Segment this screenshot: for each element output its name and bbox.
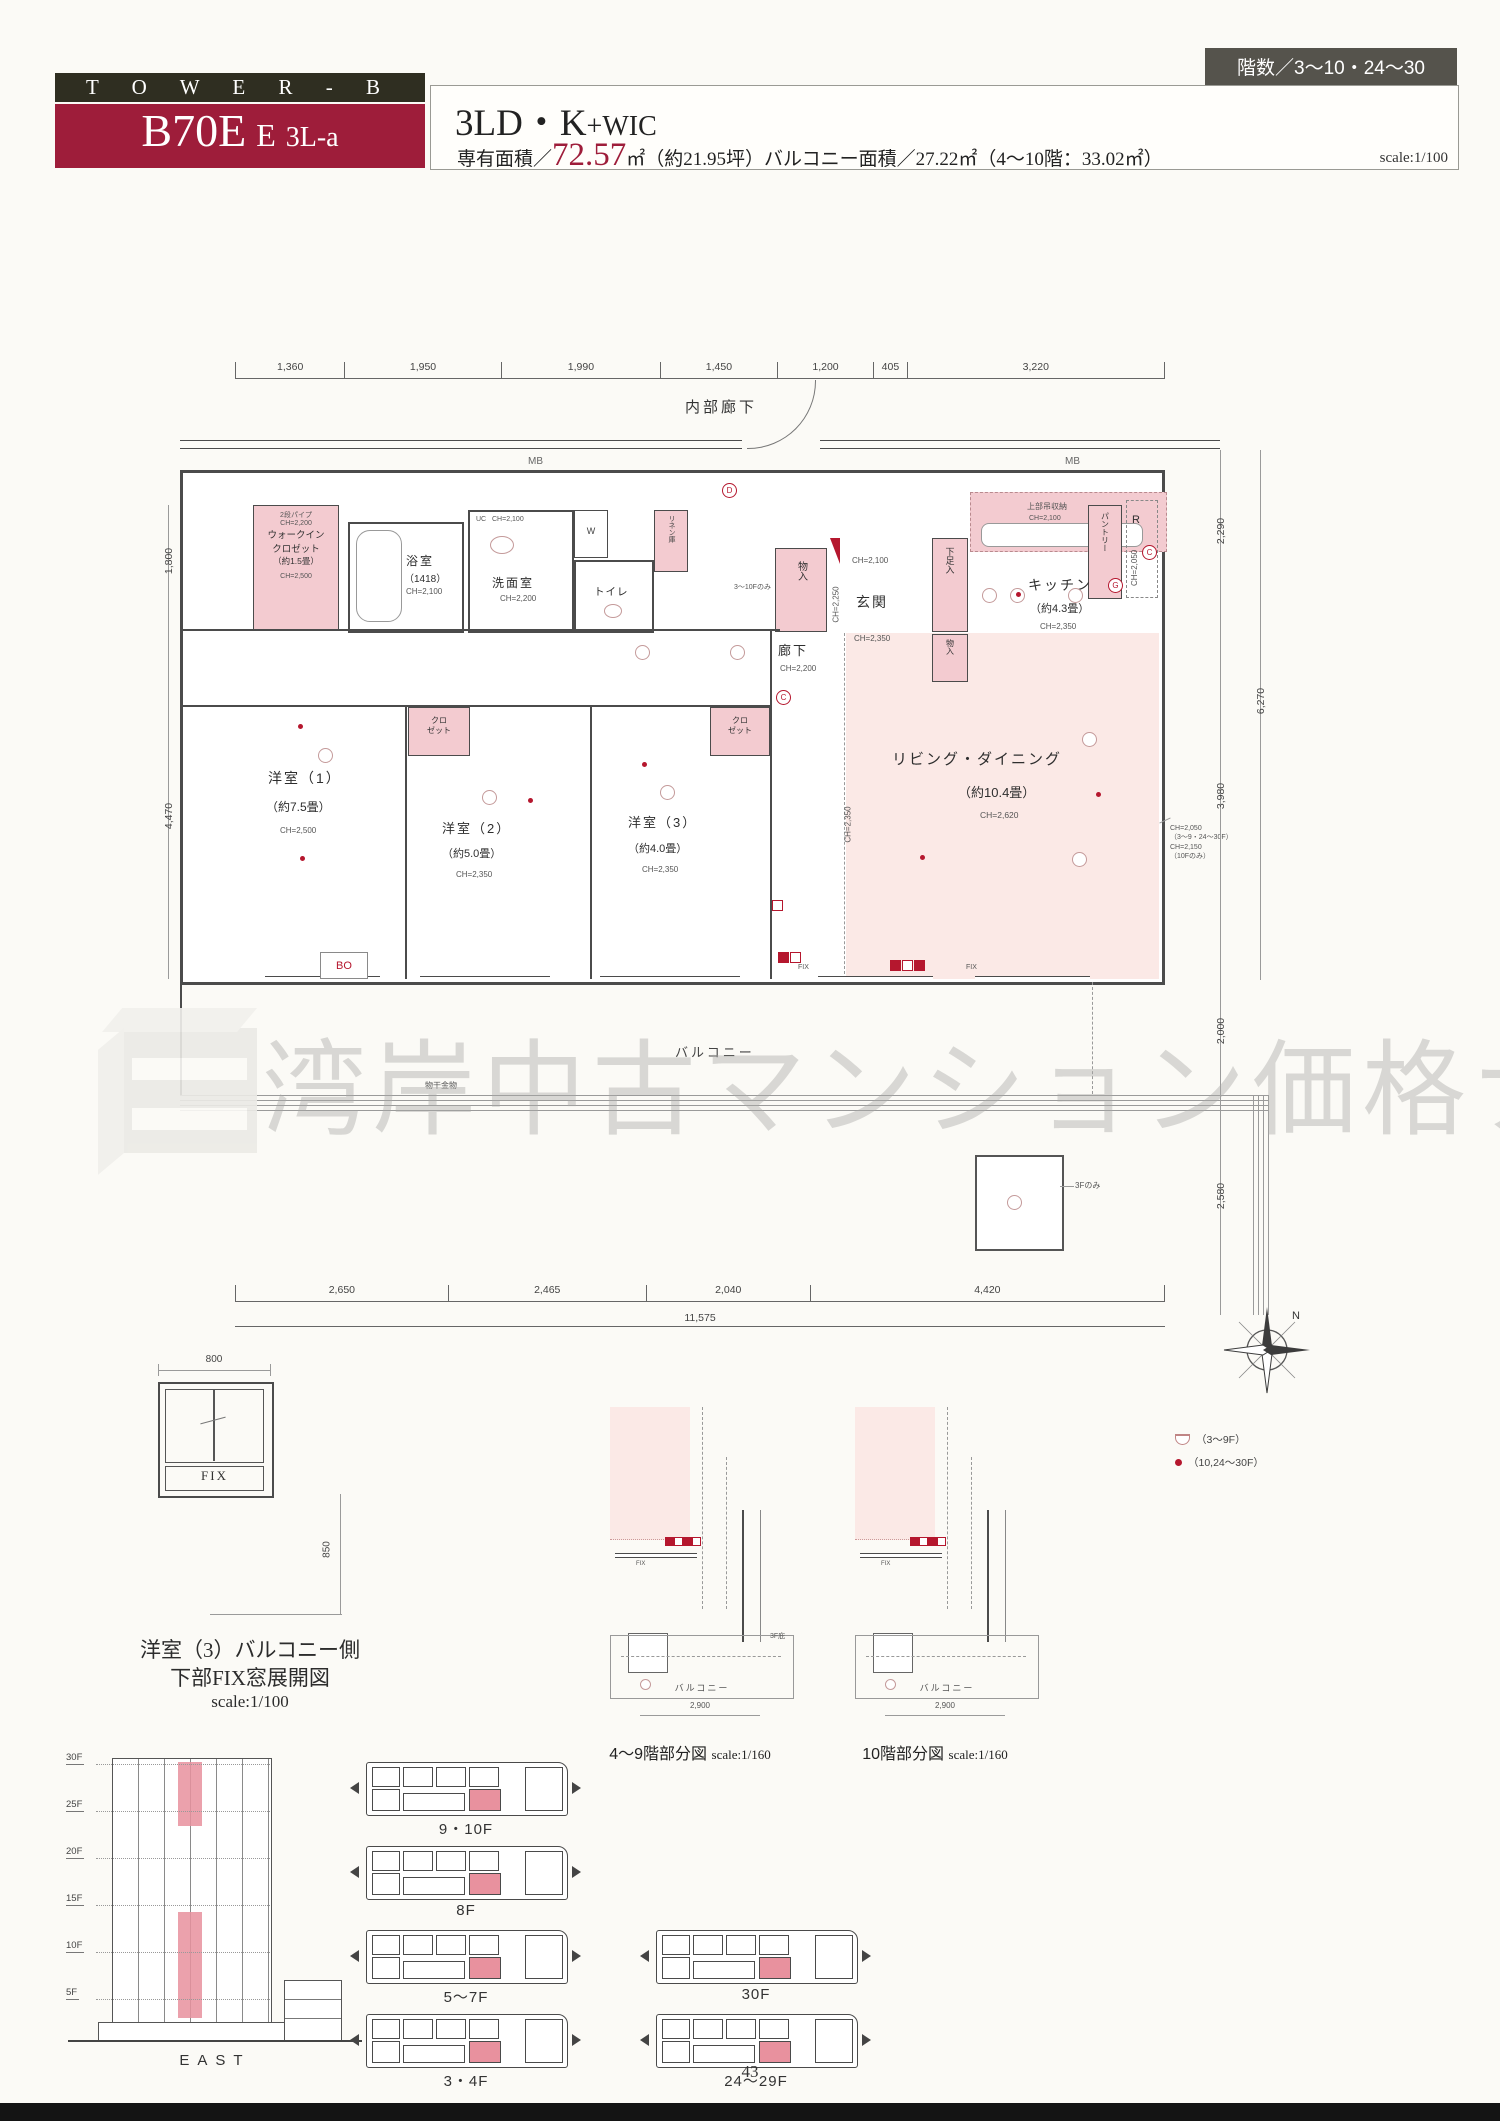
- fixture-marker: [298, 724, 303, 729]
- fixwin-dim-h: 850: [322, 1515, 333, 1585]
- keyplan-block: 9・10F: [358, 1762, 578, 1842]
- living-area-fill: [846, 633, 1159, 979]
- bath-name: 浴室: [406, 552, 434, 569]
- bo-box: BO: [320, 952, 368, 979]
- wic-name2: クロゼット: [254, 541, 338, 555]
- living-note-line: （10Fのみ）: [1170, 852, 1233, 861]
- fridge-ch: CH=2,050: [1130, 550, 1139, 586]
- living-ch-side: CH=2,350: [844, 806, 853, 842]
- storage-label: 物入: [794, 561, 809, 581]
- room3-ch: CH=2,350: [642, 865, 678, 874]
- dim-bottom-total: 11,575: [235, 1312, 1165, 1327]
- page-bottom-bar: [0, 2103, 1500, 2121]
- partial-plan-4-9f: FIX バルコニー 3F庇 2,900 4〜9階部分図 scale:1/160: [570, 1395, 810, 1775]
- fixwin-scale: scale:1/100: [100, 1692, 400, 1712]
- dim-left-2: 4,470: [163, 781, 175, 851]
- floors-badge-text: 階数／3〜10・24〜30: [1237, 53, 1425, 80]
- window: [615, 1553, 697, 1558]
- dim-label: 1,200: [778, 361, 874, 373]
- fixture-marker: [778, 952, 789, 963]
- entry-name: 玄関: [856, 592, 888, 612]
- dim-right-1: 2,290: [1215, 496, 1227, 566]
- area-value: 72.57: [552, 137, 626, 173]
- dim-label: 1,990: [502, 361, 661, 373]
- bathtub: [356, 530, 402, 622]
- linen-closet: リネン庫: [654, 510, 688, 572]
- room-bath: 浴室 （1418） CH=2,100: [348, 522, 464, 633]
- partial-caption-text: 4〜9階部分図: [609, 1746, 707, 1763]
- unit-highlight-upper: [178, 1762, 202, 1826]
- partial-dim: 2,900: [885, 1701, 1005, 1710]
- dimension-row-bottom: 2,650 2,465 2,040 4,420: [235, 1285, 1165, 1302]
- page-number: 43: [700, 2062, 800, 2082]
- legend-text: （3〜9F）: [1196, 1432, 1246, 1447]
- plan-legend: （3〜9F） （10,24〜30F）: [1175, 1432, 1355, 1478]
- balcony-label: バルコニー: [675, 1042, 755, 1061]
- ceiling-light: [730, 645, 745, 660]
- kitchen-hang: 上部吊収納: [1027, 501, 1067, 512]
- floor-label: 20F: [66, 1846, 84, 1859]
- floor-plan: 1,360 1,950 1,990 1,450 1,200 405 3,220 …: [130, 300, 1340, 1375]
- unit-code-sub: E: [256, 117, 276, 154]
- living-name: リビング・ダイニング: [892, 748, 1062, 769]
- fixture-marker: [1096, 792, 1101, 797]
- marker-c: C: [776, 690, 791, 705]
- partial-balcony-label: バルコニー: [611, 1681, 793, 1694]
- fixwin-dim-w: 800: [158, 1354, 270, 1365]
- keyplan-label: 9・10F: [366, 1818, 566, 1839]
- partial-note: 3F庇: [770, 1631, 785, 1641]
- dim-label: 2,040: [647, 1284, 810, 1296]
- fix-label: FIX: [798, 964, 809, 971]
- dim-left-1: 1,800: [163, 526, 175, 596]
- watermark-logo: [92, 1000, 262, 1160]
- partial-balcony: バルコニー: [855, 1635, 1039, 1699]
- fixture-marker: [790, 952, 801, 963]
- fixture-marker: [665, 1537, 674, 1546]
- partial-caption: 10階部分図 scale:1/160: [800, 1740, 1070, 1764]
- marker-c: C: [1142, 545, 1157, 560]
- room2-ch: CH=2,350: [456, 870, 492, 879]
- fixture-marker: [919, 1537, 928, 1546]
- tower-name: T O W E R - B: [86, 75, 394, 100]
- ceiling-light: [1068, 588, 1083, 603]
- pantry-label: パントリー: [1100, 512, 1111, 552]
- keyplan-block: 3・4F: [358, 2014, 578, 2094]
- mb-label: MB: [1065, 456, 1080, 467]
- linen-label: リネン庫: [666, 515, 676, 543]
- unit-banner: B70EE 3L-a: [55, 104, 425, 168]
- wash-uc-ch: CH=2,100: [492, 516, 524, 523]
- wic-name1: ウォークイン: [254, 527, 338, 541]
- partial-balcony-label: バルコニー: [856, 1681, 1038, 1694]
- fixwin-caption-1: 洋室（3）バルコニー側: [100, 1634, 400, 1664]
- dimension-row-top: 1,360 1,950 1,990 1,450 1,200 405 3,220: [235, 362, 1165, 379]
- bath-size: （1418）: [404, 570, 446, 585]
- ceiling-light: [1072, 852, 1087, 867]
- room2-name: 洋室（2）: [442, 818, 511, 837]
- ceiling-light: [318, 748, 333, 763]
- bath-ch: CH=2,100: [406, 587, 442, 596]
- dim-right-4: 2,000: [1215, 996, 1227, 1066]
- unit-highlight-lower: [178, 1912, 202, 2018]
- partial-dim: 2,900: [640, 1701, 760, 1710]
- dim-right-3: 3,980: [1215, 761, 1227, 831]
- fixture-marker: [937, 1537, 946, 1546]
- closet-room3: クロ ゼット: [710, 707, 770, 756]
- fixture-marker: [674, 1537, 683, 1546]
- storage-closet-2: 物入: [932, 634, 968, 682]
- tower-banner: T O W E R - B: [55, 73, 425, 102]
- legend-item-3-9f: （3〜9F）: [1175, 1432, 1355, 1447]
- fixture-marker: [890, 960, 901, 971]
- fixture-marker: [910, 1537, 919, 1546]
- keyplan-label: 8F: [366, 1902, 566, 1919]
- ceiling-light: [660, 785, 675, 800]
- keyplan-block: 8F: [358, 1846, 578, 1926]
- keyplan-block: 30F: [648, 1930, 868, 2010]
- floor-label: 5F: [66, 1987, 79, 2000]
- fixture-marker: [642, 762, 647, 767]
- fix-label: FIX: [881, 1561, 890, 1567]
- closet-label: ゼット: [409, 726, 469, 736]
- ceiling-light: [482, 790, 497, 805]
- note-3f-only: 3Fのみ: [1075, 1180, 1100, 1191]
- partial-caption-scale: scale:1/160: [712, 1747, 771, 1762]
- keyplan-label: 5〜7F: [366, 1986, 566, 2007]
- fixture-marker: [1016, 592, 1021, 597]
- dim-right-2: 6,270: [1255, 666, 1267, 736]
- partial-plan-10f: FIX バルコニー 2,900 10階部分図 scale:1/160: [815, 1395, 1055, 1775]
- closet-room2: クロ ゼット: [408, 707, 470, 756]
- mb-label: MB: [528, 456, 543, 467]
- closet-label: クロ: [409, 716, 469, 726]
- entry-ch-top: CH=2,100: [852, 556, 888, 565]
- wash-uc: UC: [476, 516, 486, 523]
- floor-label: 30F: [66, 1752, 84, 1765]
- fixwin-caption-2: 下部FIX窓展開図: [100, 1662, 400, 1692]
- fixture-marker: [920, 855, 925, 860]
- unit-type: 3L-a: [286, 122, 339, 154]
- balcony-divider: [1092, 982, 1093, 1094]
- room-toilet: トイレ: [574, 560, 654, 633]
- legend-item-10-24-30f: （10,24〜30F）: [1175, 1455, 1355, 1470]
- room1-ch: CH=2,500: [280, 826, 316, 835]
- closet-label: ゼット: [711, 726, 769, 736]
- window: [975, 976, 1090, 983]
- ceiling-light: [635, 645, 650, 660]
- window: [860, 1553, 942, 1558]
- living-note-line: CH=2,150: [1170, 843, 1233, 852]
- wash-ch: CH=2,200: [500, 594, 536, 603]
- fridge-label: R: [1132, 514, 1142, 526]
- floors-badge: 階数／3〜10・24〜30: [1205, 48, 1457, 85]
- laundry-space: W: [574, 510, 608, 558]
- dim-label: 405: [874, 361, 906, 373]
- side-equipment-box: [975, 1155, 1064, 1251]
- wic-ch: CH=2,500: [254, 573, 338, 580]
- kitchen-hang-ch: CH=2,100: [1029, 515, 1061, 522]
- entry-note: 3〜10Fのみ: [734, 582, 771, 592]
- sink-basin: [490, 536, 514, 554]
- dim-label: 4,420: [811, 1284, 1164, 1296]
- bo-label: BO: [336, 960, 352, 972]
- keyplan-block: 5〜7F: [358, 1930, 578, 2010]
- room1-size: （約7.5畳）: [266, 798, 331, 815]
- closet-label: クロ: [711, 716, 769, 726]
- kitchen-size: （約4.3畳）: [1030, 600, 1089, 616]
- fixture-marker: [772, 900, 783, 911]
- marker-d: D: [722, 483, 737, 498]
- room3-size: （約4.0畳）: [628, 840, 687, 856]
- fixture-marker: [692, 1537, 701, 1546]
- window: [818, 976, 933, 983]
- marker-g: G: [1108, 578, 1123, 593]
- podium: [98, 2022, 286, 2042]
- equipment-circle: [1007, 1195, 1022, 1210]
- entrance-wedge: [830, 538, 840, 564]
- keyplan-label: 30F: [656, 1986, 856, 2003]
- laundry-label: W: [575, 526, 607, 536]
- compass-north-label: N: [1292, 1310, 1300, 1322]
- sprinkler-icon: [1175, 1434, 1190, 1445]
- keyplan-block: 24〜29F: [648, 2014, 868, 2094]
- plan-scale: scale:1/100: [1380, 150, 1448, 167]
- floor-label: 10F: [66, 1940, 84, 1953]
- partial-caption-text: 10階部分図: [862, 1746, 944, 1763]
- room3-name: 洋室（3）: [628, 812, 697, 831]
- unit-code: B70E: [141, 104, 246, 157]
- balcony-area: バルコニー面積／27.22㎡（4〜10階：33.02㎡）: [764, 149, 1163, 170]
- fixture-marker: [914, 960, 925, 971]
- window: [420, 976, 550, 983]
- entry-ch-side: CH=2,250: [832, 586, 841, 622]
- room2-size: （約5.0畳）: [442, 845, 501, 861]
- living-ch: CH=2,620: [980, 810, 1019, 820]
- building-elevation: 30F 25F 20F 15F 10F 5F EAST: [60, 1752, 370, 2102]
- fixture-marker: [683, 1537, 692, 1546]
- annex-building: [284, 1980, 342, 2042]
- dim-label: 1,950: [345, 361, 500, 373]
- kitchen-ch: CH=2,350: [1040, 622, 1076, 631]
- wash-name: 洗面室: [492, 574, 534, 591]
- fixture-marker: [528, 798, 533, 803]
- room-wash: UC CH=2,100 洗面室 CH=2,200: [468, 510, 574, 633]
- shoe-label: 下足入: [944, 547, 957, 574]
- floor-label: 15F: [66, 1893, 84, 1906]
- area-line: 専有面積／72.57㎡（約21.95坪）バルコニー面積／27.22㎡（4〜10階…: [457, 137, 1163, 174]
- wic-size: （約1.5畳）: [254, 555, 338, 567]
- fixture-marker: [300, 856, 305, 861]
- keyplan-label: 3・4F: [366, 2070, 566, 2091]
- ceiling-light: [1082, 732, 1097, 747]
- fixture-marker: [902, 960, 913, 971]
- legend-text: （10,24〜30F）: [1188, 1455, 1264, 1470]
- dim-label: 1,360: [236, 361, 344, 373]
- dim-label: 2,465: [449, 1284, 646, 1296]
- toilet-name: トイレ: [594, 584, 629, 599]
- area-suffix: ㎡（約21.95坪）: [626, 149, 764, 170]
- living-size: （約10.4畳）: [958, 782, 1035, 801]
- dim-label: 1,450: [661, 361, 777, 373]
- floor-label: 25F: [66, 1799, 84, 1812]
- dim-right-5: 2,580: [1215, 1161, 1227, 1231]
- fix-label: FIX: [636, 1561, 645, 1567]
- ground-line: [68, 2040, 362, 2042]
- room1-name: 洋室（1）: [268, 768, 342, 788]
- storage-closet: 物入: [775, 548, 827, 632]
- living-note-line: （3〜9・24〜30F）: [1170, 833, 1233, 842]
- wic-ch-top: CH=2,200: [254, 520, 338, 527]
- plan-title-box: 3LD・K+WIC 専有面積／72.57㎡（約21.95坪）バルコニー面積／27…: [430, 85, 1459, 170]
- compass: N: [1222, 1305, 1312, 1395]
- partial-balcony: バルコニー: [610, 1635, 794, 1699]
- dim-label: 3,220: [908, 361, 1164, 373]
- elevation-caption: EAST: [115, 2052, 315, 2069]
- corridor-ch: CH=2,200: [780, 664, 816, 673]
- window: [600, 976, 740, 983]
- ceiling-light: [982, 588, 997, 603]
- shoe-closet: 下足入: [932, 538, 968, 632]
- area-prefix: 専有面積／: [457, 149, 552, 170]
- fixture-marker: [928, 1537, 937, 1546]
- hang-metal-label: 物干金物: [425, 1080, 457, 1091]
- fixwin-fix-label: FIX: [201, 1468, 228, 1483]
- red-dot-icon: [1175, 1459, 1182, 1466]
- partial-caption-scale: scale:1/160: [949, 1747, 1008, 1762]
- entry-ch-bottom: CH=2,350: [854, 634, 890, 643]
- partial-caption: 4〜9階部分図 scale:1/160: [555, 1740, 825, 1764]
- storage-label-2: 物入: [945, 639, 956, 655]
- toilet-bowl: [604, 604, 622, 618]
- fixwin-window: FIX: [158, 1382, 274, 1498]
- corridor-wall: [180, 440, 1220, 449]
- wic-pipe: 2段パイプ: [254, 510, 338, 520]
- fix-label: FIX: [966, 964, 977, 971]
- corridor-name: 廊下: [778, 640, 808, 659]
- fix-window-diagram: 800 FIX 850 洋室（3）バルコニー側 下部FIX窓展開図 scale:…: [100, 1352, 400, 1682]
- dim-label: 2,650: [236, 1284, 448, 1296]
- room-wic: 2段パイプ CH=2,200 ウォークイン クロゼット （約1.5畳） CH=2…: [253, 505, 339, 631]
